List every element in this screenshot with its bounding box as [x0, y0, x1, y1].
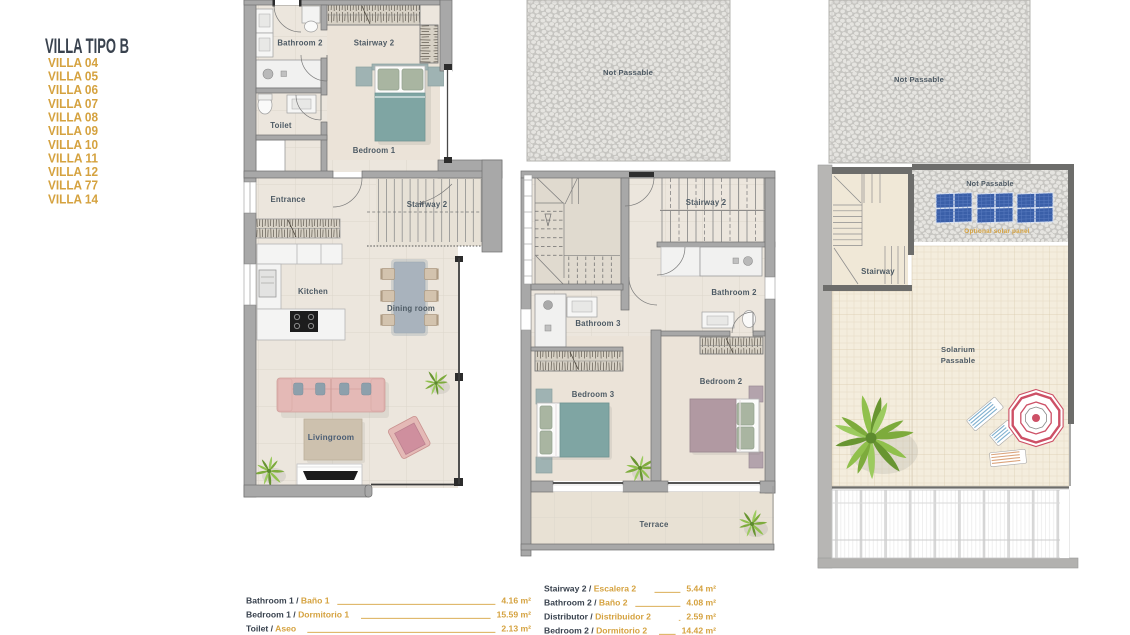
- svg-text:Optional solar panel: Optional solar panel: [964, 228, 1029, 235]
- svg-text:VILLA 10: VILLA 10: [48, 138, 98, 152]
- svg-text:Bedroom 2 / Dormitorio 2: Bedroom 2 / Dormitorio 2: [544, 626, 647, 635]
- svg-text:Entrance: Entrance: [271, 195, 306, 204]
- svg-text:Stairway: Stairway: [861, 267, 895, 276]
- svg-text:VILLA 11: VILLA 11: [48, 151, 98, 165]
- svg-text:Stairway 2 / Escalera 2: Stairway 2 / Escalera 2: [544, 584, 636, 594]
- svg-text:Bathroom 2: Bathroom 2: [711, 288, 757, 297]
- svg-text:VILLA 07: VILLA 07: [48, 97, 98, 111]
- svg-text:Distributor / Distribuidor 2: Distributor / Distribuidor 2: [544, 612, 651, 622]
- svg-text:2.59 m²: 2.59 m²: [686, 612, 716, 622]
- svg-text:VILLA 06: VILLA 06: [48, 83, 98, 97]
- svg-text:Dining room: Dining room: [387, 304, 435, 313]
- svg-text:4.16 m²: 4.16 m²: [501, 596, 531, 606]
- svg-text:VILLA 77: VILLA 77: [48, 179, 98, 193]
- svg-text:Bedroom 1: Bedroom 1: [353, 146, 396, 155]
- svg-text:Livingroom: Livingroom: [308, 433, 355, 442]
- svg-text:VILLA 14: VILLA 14: [48, 192, 98, 206]
- svg-text:Bathroom 2: Bathroom 2: [277, 39, 323, 48]
- svg-text:Bedroom 2: Bedroom 2: [700, 377, 743, 386]
- svg-text:VILLA TIPO B: VILLA TIPO B: [45, 35, 129, 58]
- svg-text:Toilet / Aseo: Toilet / Aseo: [246, 624, 296, 634]
- svg-text:Bathroom 3: Bathroom 3: [575, 319, 621, 328]
- svg-text:Terrace: Terrace: [640, 520, 669, 529]
- svg-text:Stairway 2: Stairway 2: [686, 198, 727, 207]
- svg-text:Solarium: Solarium: [941, 345, 975, 354]
- svg-text:VILLA 09: VILLA 09: [48, 124, 98, 138]
- svg-text:Passable: Passable: [941, 356, 976, 365]
- svg-text:4.08 m²: 4.08 m²: [686, 598, 716, 608]
- svg-text:VILLA 05: VILLA 05: [48, 70, 98, 84]
- svg-text:2.13 m²: 2.13 m²: [501, 624, 531, 634]
- svg-text:Kitchen: Kitchen: [298, 287, 328, 296]
- svg-text:5.44 m²: 5.44 m²: [686, 584, 716, 594]
- svg-text:VILLA 12: VILLA 12: [48, 165, 98, 179]
- svg-text:Not Passable: Not Passable: [603, 68, 653, 77]
- svg-text:VILLA 04: VILLA 04: [48, 56, 98, 70]
- svg-text:Toilet: Toilet: [270, 121, 292, 130]
- svg-text:Bedroom 1 / Dormitorio 1: Bedroom 1 / Dormitorio 1: [246, 610, 349, 620]
- svg-text:Stairway 2: Stairway 2: [407, 200, 448, 209]
- svg-text:VILLA 08: VILLA 08: [48, 110, 98, 124]
- svg-text:Not Passable: Not Passable: [966, 179, 1014, 188]
- svg-text:Bedroom 3: Bedroom 3: [572, 390, 615, 399]
- svg-text:14.42 m²: 14.42 m²: [682, 626, 717, 635]
- svg-text:15.59 m²: 15.59 m²: [497, 610, 532, 620]
- svg-text:Bathroom 2 / Baño 2: Bathroom 2 / Baño 2: [544, 598, 628, 608]
- svg-text:Not Passable: Not Passable: [894, 75, 944, 84]
- svg-text:Bathroom 1 / Baño 1: Bathroom 1 / Baño 1: [246, 596, 330, 606]
- svg-text:Stairway 2: Stairway 2: [354, 39, 395, 48]
